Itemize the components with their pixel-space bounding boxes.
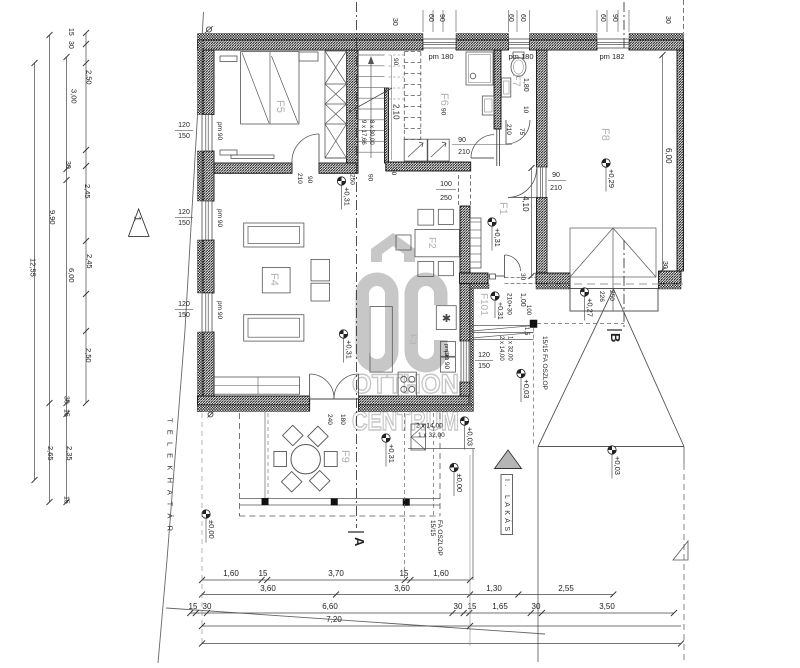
svg-text:30: 30 <box>390 168 397 176</box>
svg-text:F5: F5 <box>274 100 286 113</box>
svg-text:240: 240 <box>326 414 333 425</box>
svg-text:1,5: 1,5 <box>523 327 529 336</box>
svg-text:3,60: 3,60 <box>260 584 276 593</box>
svg-text:30: 30 <box>391 18 398 26</box>
svg-text:30: 30 <box>454 602 463 611</box>
svg-text:3,70: 3,70 <box>328 569 344 578</box>
svg-text:+0,03: +0,03 <box>466 427 475 446</box>
svg-text:1 x 32,00: 1 x 32,00 <box>507 336 513 361</box>
svg-text:12,55: 12,55 <box>29 258 38 277</box>
svg-text:8 x 30,00: 8 x 30,00 <box>368 120 374 145</box>
svg-text:2,55: 2,55 <box>558 584 574 593</box>
svg-text:150: 150 <box>178 220 190 227</box>
svg-text:150: 150 <box>178 133 190 140</box>
svg-text:pm 180: pm 180 <box>508 52 533 61</box>
svg-text:F2: F2 <box>426 237 437 249</box>
svg-text:15: 15 <box>63 409 70 417</box>
svg-text:OTTHON: OTTHON <box>352 369 459 399</box>
svg-text:2 x 14,00: 2 x 14,00 <box>498 336 504 361</box>
svg-text:2,50: 2,50 <box>84 348 93 363</box>
svg-text:6,00: 6,00 <box>67 268 76 283</box>
svg-text:30: 30 <box>532 602 541 611</box>
svg-text:30: 30 <box>63 396 70 404</box>
svg-text:1,60: 1,60 <box>223 569 239 578</box>
svg-text:30: 30 <box>203 602 212 611</box>
svg-text:15/15: 15/15 <box>429 520 436 537</box>
svg-text:15: 15 <box>63 496 70 504</box>
svg-text:B: B <box>608 333 623 342</box>
svg-text:150: 150 <box>478 363 490 370</box>
svg-text:F6: F6 <box>438 93 450 106</box>
svg-text:1,80: 1,80 <box>522 78 529 92</box>
svg-text:90: 90 <box>306 176 313 184</box>
svg-text:+0,31: +0,31 <box>496 302 503 320</box>
svg-text:15: 15 <box>400 569 409 578</box>
svg-text:100: 100 <box>440 181 452 188</box>
svg-text:pm 180: pm 180 <box>428 52 453 61</box>
svg-text:120: 120 <box>178 122 190 129</box>
svg-text:3,60: 3,60 <box>394 584 410 593</box>
svg-text:pm 182: pm 182 <box>599 52 624 61</box>
svg-text:+0,03: +0,03 <box>522 380 531 399</box>
svg-text:210+30: 210+30 <box>506 293 513 315</box>
svg-text:90: 90 <box>611 14 618 22</box>
svg-text:1,60: 1,60 <box>433 569 449 578</box>
svg-text:30: 30 <box>661 261 668 269</box>
svg-text:1 x 32,00: 1 x 32,00 <box>418 432 445 439</box>
svg-text:±0,00: ±0,00 <box>207 520 216 539</box>
svg-text:A: A <box>352 537 367 547</box>
svg-text:1,65: 1,65 <box>492 602 508 611</box>
svg-text:90: 90 <box>458 137 466 144</box>
svg-text:pm 90: pm 90 <box>216 122 223 140</box>
svg-text:60: 60 <box>427 14 434 22</box>
svg-text:+0,31: +0,31 <box>387 444 396 463</box>
svg-text:120: 120 <box>478 352 490 359</box>
svg-text:pm 90: pm 90 <box>216 209 223 227</box>
svg-text:+0,31: +0,31 <box>345 340 354 359</box>
svg-text:90: 90 <box>552 172 560 179</box>
svg-text:15: 15 <box>189 602 198 611</box>
svg-text:250: 250 <box>349 174 356 185</box>
svg-text:60: 60 <box>519 14 526 22</box>
svg-text:226: 226 <box>598 291 605 302</box>
svg-text:F7: F7 <box>510 74 522 87</box>
svg-text:6,00: 6,00 <box>664 148 673 164</box>
svg-text:180: 180 <box>339 414 346 425</box>
svg-text:2,50: 2,50 <box>85 70 94 85</box>
svg-text:250: 250 <box>608 290 615 301</box>
svg-text:F101: F101 <box>478 293 489 316</box>
svg-text:2,10: 2,10 <box>392 104 401 120</box>
svg-text:120: 120 <box>178 209 190 216</box>
svg-text:2 x 14,00: 2 x 14,00 <box>416 423 443 430</box>
svg-text:30: 30 <box>67 41 74 49</box>
svg-text:100: 100 <box>525 305 531 316</box>
svg-text:F1: F1 <box>497 202 509 215</box>
svg-text:FA OSZLOP: FA OSZLOP <box>436 520 443 556</box>
svg-text:F3: F3 <box>408 334 418 345</box>
svg-text:2,65: 2,65 <box>46 446 55 461</box>
svg-text:90: 90 <box>367 174 374 182</box>
svg-text:210: 210 <box>296 173 303 184</box>
svg-text:6,60: 6,60 <box>322 602 338 611</box>
svg-text:1: 1 <box>132 216 143 221</box>
svg-text:2,45: 2,45 <box>83 184 92 199</box>
svg-text:60: 60 <box>599 14 606 22</box>
svg-text:15: 15 <box>468 602 477 611</box>
svg-text:120: 120 <box>178 301 190 308</box>
svg-text:pm 90: pm 90 <box>443 344 449 359</box>
svg-text:+0,31: +0,31 <box>343 187 352 206</box>
svg-text:90: 90 <box>440 108 447 116</box>
svg-text:30: 30 <box>64 161 71 169</box>
svg-text:F4: F4 <box>268 273 280 286</box>
svg-text:90: 90 <box>438 14 445 22</box>
svg-text:3,00: 3,00 <box>70 89 79 104</box>
svg-text:2,35: 2,35 <box>65 446 74 461</box>
svg-text:30: 30 <box>664 16 671 24</box>
svg-text:F9: F9 <box>339 450 351 463</box>
svg-text:210: 210 <box>458 149 470 156</box>
svg-text:2,45: 2,45 <box>85 254 94 269</box>
svg-text:75: 75 <box>518 128 525 136</box>
svg-text:210: 210 <box>550 185 562 192</box>
svg-text:90: 90 <box>392 58 399 66</box>
svg-text:10: 10 <box>522 106 529 114</box>
svg-text:7,20: 7,20 <box>326 615 342 624</box>
svg-text:3,50: 3,50 <box>599 602 615 611</box>
svg-text:pm 90: pm 90 <box>216 301 223 319</box>
svg-text:15/15 FA OSZLOP: 15/15 FA OSZLOP <box>541 336 548 390</box>
svg-text:9,90: 9,90 <box>48 210 57 225</box>
svg-text:4,10: 4,10 <box>521 196 530 212</box>
svg-text:150: 150 <box>178 312 190 319</box>
svg-text:+0,29: +0,29 <box>607 169 616 188</box>
svg-text:1,30: 1,30 <box>486 584 502 593</box>
svg-text:±0,00: ±0,00 <box>455 474 464 493</box>
svg-text:F8: F8 <box>599 128 611 141</box>
svg-text:1,00: 1,00 <box>519 293 526 307</box>
svg-text:✱: ✱ <box>442 313 451 325</box>
svg-text:210: 210 <box>505 124 512 135</box>
svg-text:15: 15 <box>259 569 268 578</box>
svg-text:30: 30 <box>519 273 526 281</box>
svg-text:15: 15 <box>67 28 74 36</box>
svg-text:250: 250 <box>440 195 452 202</box>
svg-text:60: 60 <box>507 14 514 22</box>
svg-text:9 x 17,66: 9 x 17,66 <box>360 120 366 145</box>
svg-text:+0,31: +0,31 <box>493 228 502 247</box>
svg-text:+0,03: +0,03 <box>613 456 622 475</box>
svg-text:+0,27: +0,27 <box>586 298 595 317</box>
